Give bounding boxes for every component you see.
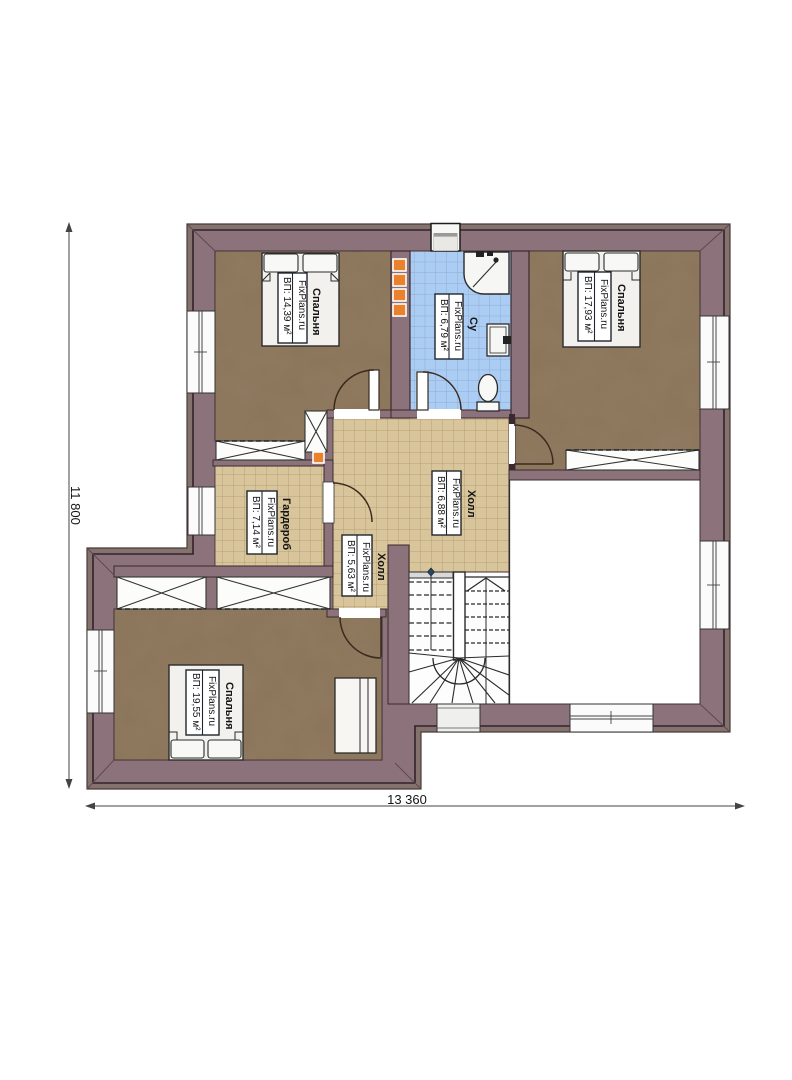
- svg-text:FixPlans.ru: FixPlans.ru: [450, 478, 461, 528]
- svg-text:ВП: 19,55 м²: ВП: 19,55 м²: [190, 673, 201, 731]
- svg-text:FixPlans.ru: FixPlans.ru: [265, 497, 276, 547]
- svg-text:FixPlans.ru: FixPlans.ru: [206, 676, 217, 726]
- svg-text:ВП: 14,39 м²: ВП: 14,39 м²: [281, 277, 292, 335]
- svg-text:ВП: 6,88 м²: ВП: 6,88 м²: [435, 476, 446, 529]
- svg-text:FixPlans.ru: FixPlans.ru: [296, 280, 307, 330]
- svg-text:ВП: 6,79 м²: ВП: 6,79 м²: [438, 299, 449, 352]
- svg-text:11 800: 11 800: [68, 486, 83, 525]
- svg-text:FixPlans.ru: FixPlans.ru: [452, 301, 463, 351]
- svg-text:Холл: Холл: [375, 553, 387, 581]
- svg-text:Холл: Холл: [465, 490, 477, 518]
- svg-text:ВП: 17,93 м²: ВП: 17,93 м²: [582, 276, 593, 334]
- svg-text:13 360: 13 360: [387, 792, 427, 807]
- svg-text:Спальня: Спальня: [310, 288, 322, 336]
- svg-text:Спальня: Спальня: [615, 284, 627, 332]
- svg-text:Су: Су: [467, 317, 479, 332]
- svg-text:Спальня: Спальня: [223, 682, 235, 730]
- svg-text:FixPlans.ru: FixPlans.ru: [598, 279, 609, 329]
- svg-text:ВП: 7,14 м²: ВП: 7,14 м²: [250, 496, 261, 549]
- svg-text:FixPlans.ru: FixPlans.ru: [360, 542, 371, 592]
- svg-text:ВП: 5,63 м²: ВП: 5,63 м²: [345, 540, 356, 593]
- svg-text:Гардероб: Гардероб: [280, 498, 292, 550]
